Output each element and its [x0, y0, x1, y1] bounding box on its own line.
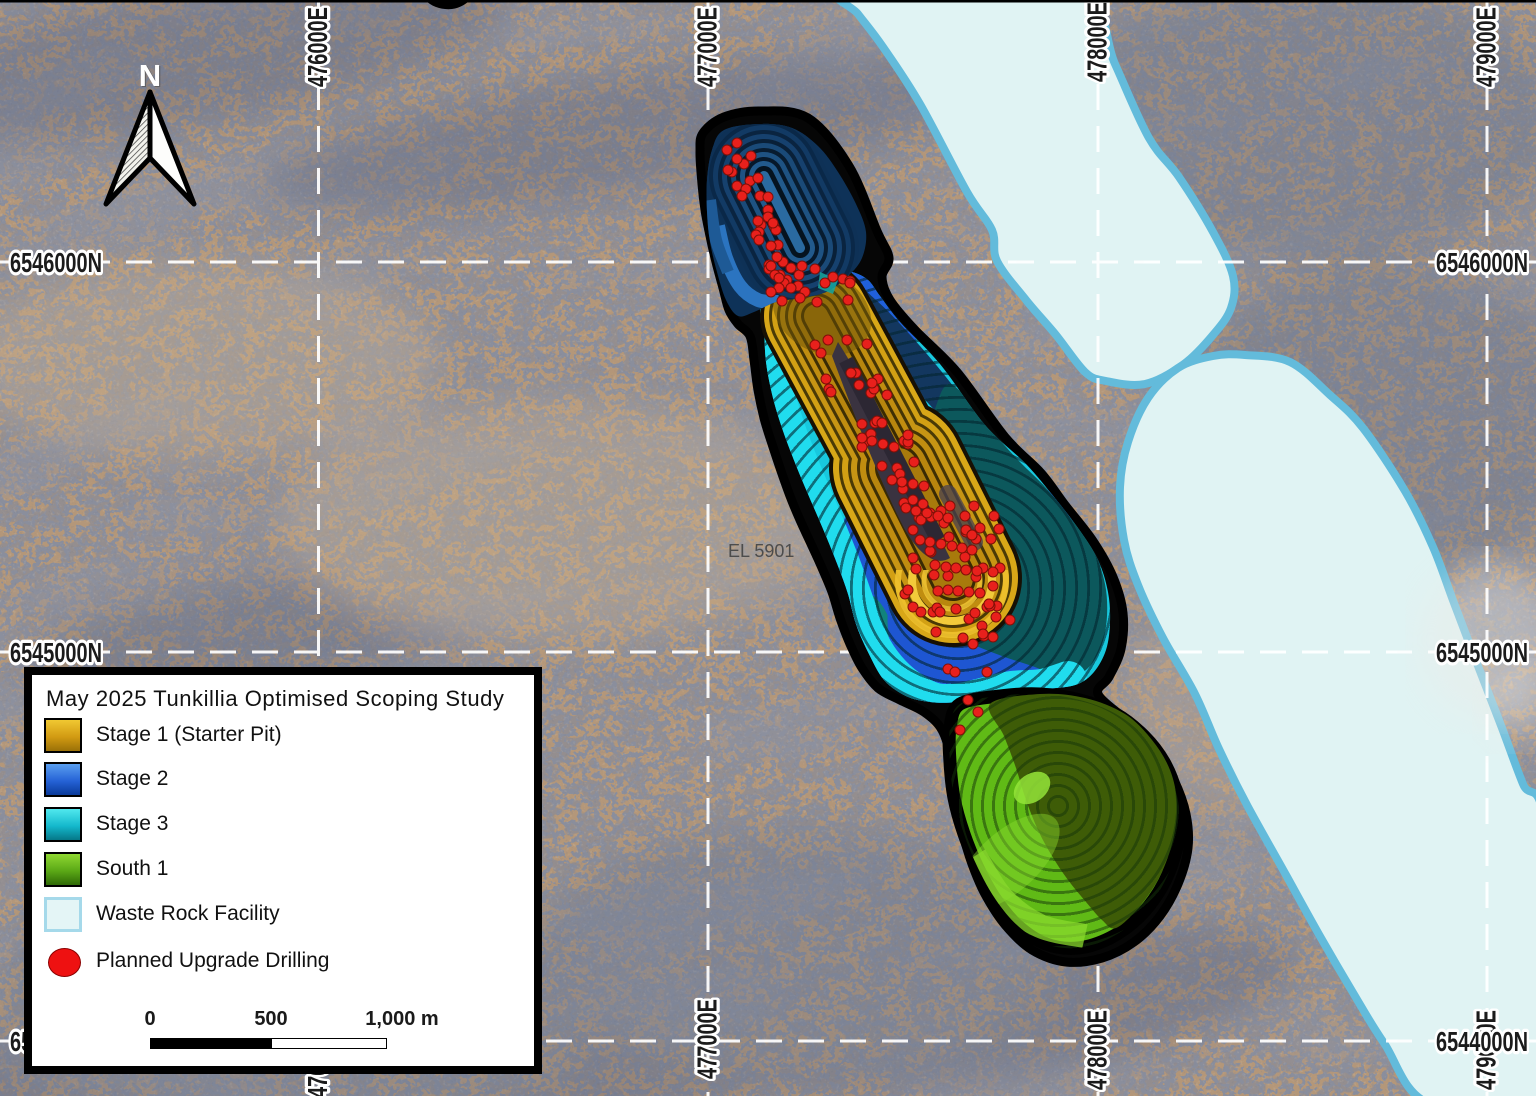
svg-text:479000E: 479000E [1471, 7, 1502, 87]
svg-text:478000E: 478000E [1082, 2, 1113, 82]
svg-text:476000E: 476000E [302, 7, 333, 87]
svg-text:6544000N: 6544000N [1436, 1026, 1528, 1057]
svg-text:6545000N: 6545000N [1436, 637, 1528, 668]
svg-text:478000E: 478000E [1082, 1010, 1113, 1090]
svg-text:477000E: 477000E [692, 999, 723, 1079]
svg-text:477000E: 477000E [692, 7, 723, 87]
svg-text:EL 5901: EL 5901 [728, 541, 794, 561]
svg-text:N: N [139, 58, 161, 93]
svg-text:6546000N: 6546000N [1436, 247, 1528, 278]
svg-text:6546000N: 6546000N [10, 247, 102, 278]
svg-text:6545000N: 6545000N [10, 637, 102, 668]
